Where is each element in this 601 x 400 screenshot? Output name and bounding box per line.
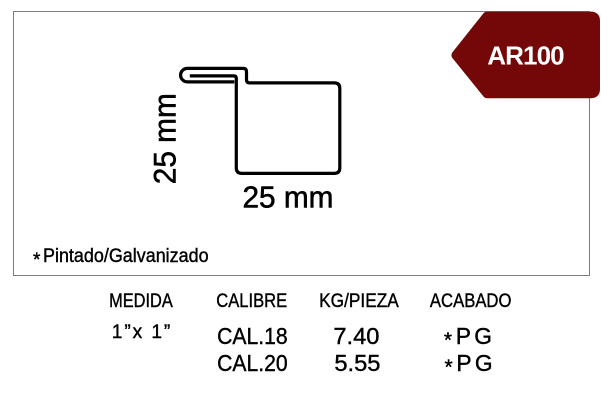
svg-text:25 mm: 25 mm: [243, 182, 334, 215]
svg-text:25 mm: 25 mm: [146, 93, 182, 184]
